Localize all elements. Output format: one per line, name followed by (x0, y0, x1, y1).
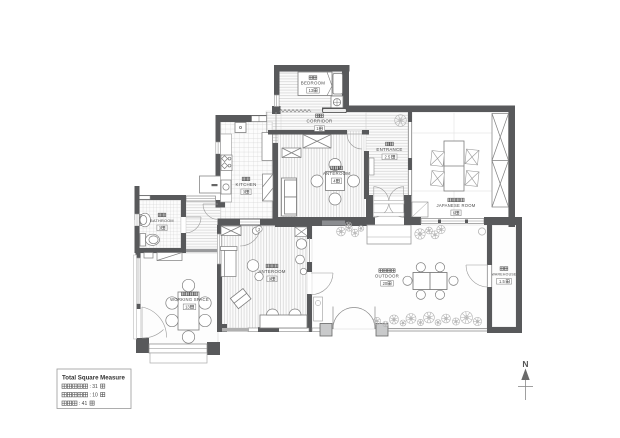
svg-text:Total Square Measure: Total Square Measure (62, 375, 125, 382)
svg-text:2.5: 2.5 (385, 154, 391, 159)
svg-text:13: 13 (309, 88, 314, 93)
svg-text:OUTDOOR: OUTDOOR (375, 273, 399, 278)
svg-text:JAPANESE ROOM: JAPANESE ROOM (436, 203, 475, 208)
svg-text:CORRIDOR: CORRIDOR (307, 119, 333, 124)
svg-text:WAREHOUSE: WAREHOUSE (491, 272, 516, 276)
svg-text:20: 20 (383, 281, 388, 286)
svg-text:N: N (522, 359, 528, 369)
svg-text:ANTEROOM: ANTEROOM (258, 269, 285, 274)
svg-text:: 31: : 31 (90, 384, 99, 390)
svg-text:1.5: 1.5 (499, 279, 505, 284)
svg-text:BATHROOM: BATHROOM (150, 219, 174, 223)
svg-text:ANTEROOM: ANTEROOM (323, 171, 350, 176)
svg-text:: 10: : 10 (90, 393, 99, 399)
svg-text:ENTRANCE: ENTRANCE (376, 147, 402, 152)
svg-text:BEDROOM: BEDROOM (301, 80, 326, 85)
svg-text:: 41: : 41 (79, 401, 88, 407)
svg-text:KITCHEN: KITCHEN (235, 182, 256, 187)
svg-text:WORKING SPACE: WORKING SPACE (170, 297, 209, 302)
svg-text:13: 13 (185, 304, 190, 309)
